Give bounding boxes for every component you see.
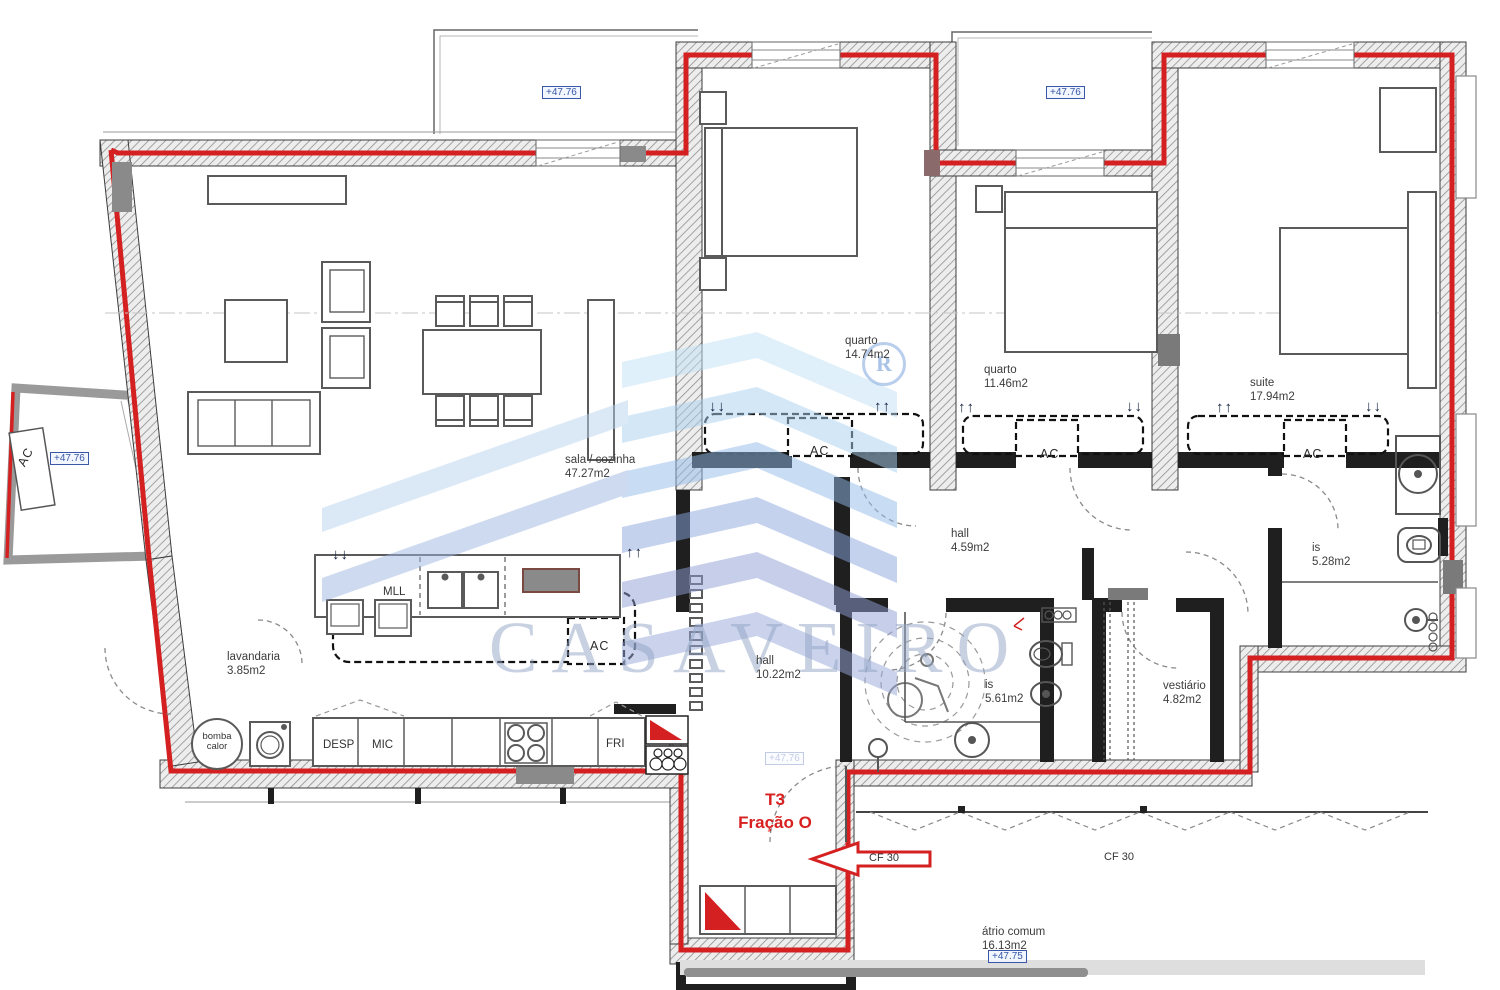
airflow-up-icon: ↑↑	[874, 398, 891, 415]
room-name: suite	[1250, 376, 1295, 390]
atrium-railing	[856, 806, 1428, 830]
microwave-label: MIC	[372, 739, 393, 751]
room-name: quarto	[845, 334, 890, 348]
room-name: hall	[951, 527, 989, 541]
elevation-marker-atrium: +47.75	[988, 950, 1027, 963]
fridge-label: FRI	[606, 738, 625, 750]
room-label-is1: is 5.28m2	[1312, 541, 1350, 569]
room-label-quarto1: quarto 14.74m2	[845, 334, 890, 362]
airflow-up-icon: ↑↑	[958, 399, 975, 416]
fire-door-label: CF 30	[869, 852, 899, 864]
heat-pump-label: bomba calor	[196, 732, 238, 753]
room-area: 47.27m2	[565, 467, 635, 481]
pantry-label: DESP	[323, 739, 354, 751]
airflow-up-icon: ↑↑	[626, 544, 643, 561]
room-label-suite: suite 17.94m2	[1250, 376, 1295, 404]
room-area: 4.59m2	[951, 541, 989, 555]
elevation-marker: +47.76	[542, 86, 581, 99]
room-name: sala / cozinha	[565, 453, 635, 467]
unit-type: T3	[715, 789, 835, 812]
room-area: 5.28m2	[1312, 555, 1350, 569]
room-area: 10.22m2	[756, 668, 801, 682]
room-label-atrio: átrio comum 16.13m2	[982, 925, 1045, 953]
room-area: 3.85m2	[227, 664, 280, 678]
unit-fraction: Fração O	[715, 812, 835, 835]
ac-label-quarto2: AC	[1040, 447, 1059, 461]
room-area: 4.82m2	[1163, 693, 1206, 707]
ac-label-suite: AC	[1303, 447, 1322, 461]
elevation-marker: +47.76	[50, 452, 89, 465]
room-label-quarto2: quarto 11.46m2	[984, 363, 1028, 391]
elevation-marker: +47.76	[765, 752, 804, 765]
room-label-sala: sala / cozinha 47.27m2	[565, 453, 635, 481]
room-area: 11.46m2	[984, 377, 1028, 391]
room-area: 17.94m2	[1250, 390, 1295, 404]
dishwasher-label: MLL	[383, 586, 405, 598]
airflow-up-icon: ↑↑	[1216, 399, 1233, 416]
unit-fraction-label: T3 Fração O	[715, 789, 835, 835]
airflow-down-icon: ↓↓	[332, 546, 349, 563]
room-label-is2: is 5.61m2	[985, 678, 1023, 706]
airflow-down-icon: ↓↓	[709, 398, 726, 415]
room-name: hall	[756, 654, 801, 668]
floor-plan-page: CASAVEIRO R sala / cozinha 47.27m2 quart…	[0, 0, 1500, 990]
room-name: vestiário	[1163, 679, 1206, 693]
room-label-lavandaria: lavandaria 3.85m2	[227, 650, 280, 678]
room-name: átrio comum	[982, 925, 1045, 939]
room-name: is	[985, 678, 1023, 692]
scale-bars	[680, 960, 1425, 977]
heat-pump-line2: calor	[196, 742, 238, 752]
room-label-vestiario: vestiário 4.82m2	[1163, 679, 1206, 707]
room-area: 14.74m2	[845, 348, 890, 362]
room-area: 5.61m2	[985, 692, 1023, 706]
floor-plan-drawing	[0, 0, 1500, 990]
fire-door-label: CF 30	[1104, 851, 1134, 863]
room-name: quarto	[984, 363, 1028, 377]
room-label-hall2: hall 10.22m2	[756, 654, 801, 682]
airflow-down-icon: ↓↓	[1126, 398, 1143, 415]
ac-label-kitchen: AC	[590, 639, 609, 653]
airflow-down-icon: ↓↓	[1365, 398, 1382, 415]
room-label-hall1: hall 4.59m2	[951, 527, 989, 555]
room-name: is	[1312, 541, 1350, 555]
room-name: lavandaria	[227, 650, 280, 664]
ac-label-quarto1: AC	[810, 444, 829, 458]
elevation-marker: +47.76	[1046, 86, 1085, 99]
